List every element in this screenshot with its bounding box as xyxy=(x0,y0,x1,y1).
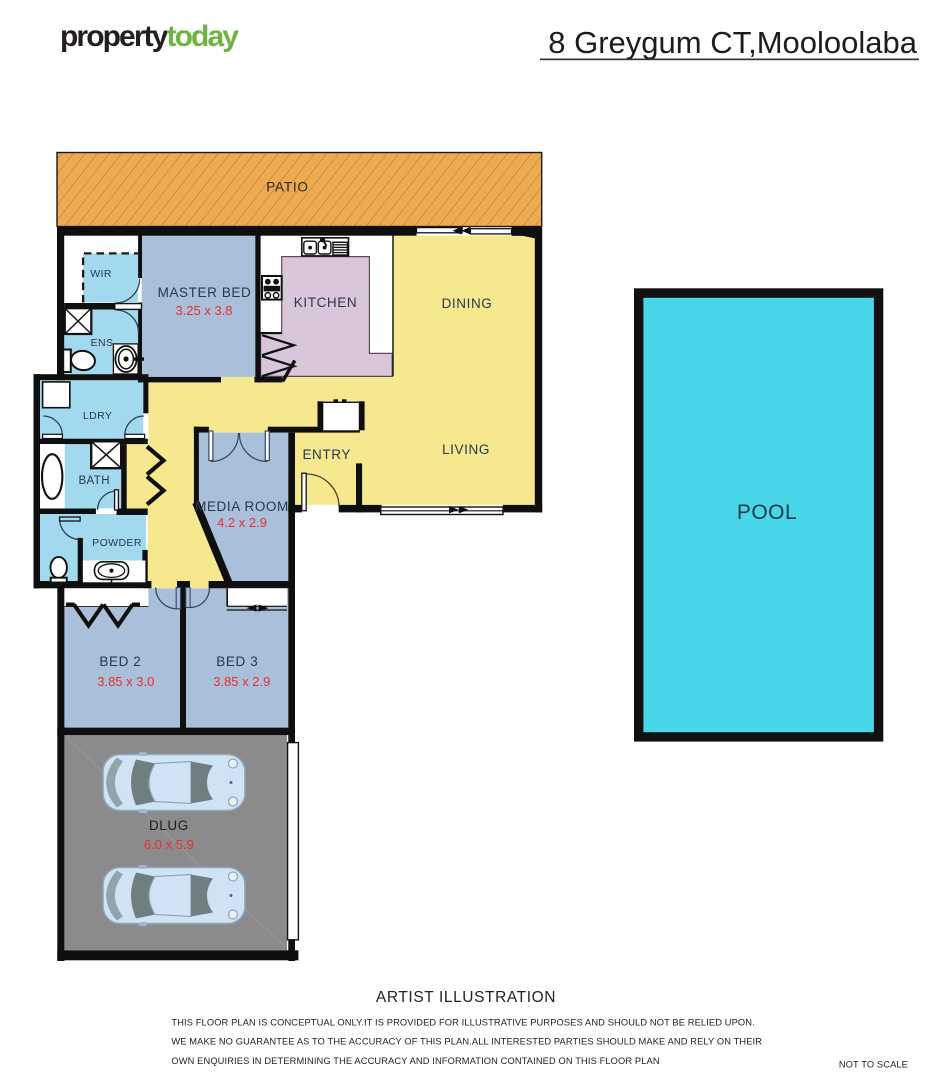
svg-text:propertytoday: propertytoday xyxy=(60,20,239,53)
svg-text:OWN ENQUIRIES IN DETERMINING T: OWN ENQUIRIES IN DETERMINING THE ACCURAC… xyxy=(171,1056,659,1066)
svg-text:ENTRY: ENTRY xyxy=(302,447,351,462)
svg-text:6.0 x 5.9: 6.0 x 5.9 xyxy=(144,837,194,852)
svg-text:WIR: WIR xyxy=(90,268,112,280)
svg-text:8 Greygum CT,Mooloolaba: 8 Greygum CT,Mooloolaba xyxy=(548,25,917,60)
svg-text:3.85 x 2.9: 3.85 x 2.9 xyxy=(213,674,270,689)
svg-text:PATIO: PATIO xyxy=(266,180,309,195)
svg-text:BATH: BATH xyxy=(78,475,109,487)
svg-text:3.25 x 3.8: 3.25 x 3.8 xyxy=(175,303,232,318)
svg-text:MASTER BED: MASTER BED xyxy=(158,285,252,300)
svg-text:3.85 x 3.0: 3.85 x 3.0 xyxy=(97,674,154,689)
svg-text:4.2 x 2.9: 4.2 x 2.9 xyxy=(217,515,267,530)
svg-text:LDRY: LDRY xyxy=(83,410,112,422)
svg-text:BED 3: BED 3 xyxy=(216,654,258,669)
svg-text:THIS FLOOR PLAN IS CONCEPTUAL: THIS FLOOR PLAN IS CONCEPTUAL ONLY.IT IS… xyxy=(171,1018,754,1028)
svg-text:ENS: ENS xyxy=(91,337,114,349)
svg-text:MEDIA ROOM: MEDIA ROOM xyxy=(195,499,289,514)
svg-text:BED 2: BED 2 xyxy=(99,654,141,669)
svg-text:ARTIST ILLUSTRATION: ARTIST ILLUSTRATION xyxy=(376,989,556,1006)
svg-text:DINING: DINING xyxy=(442,296,493,311)
svg-text:DLUG: DLUG xyxy=(149,818,189,833)
svg-text:POOL: POOL xyxy=(737,501,797,524)
svg-text:KITCHEN: KITCHEN xyxy=(294,295,357,310)
svg-text:WE MAKE NO GUARANTEE AS TO THE: WE MAKE NO GUARANTEE AS TO THE ACCURACY … xyxy=(171,1037,762,1047)
svg-text:LIVING: LIVING xyxy=(442,442,490,457)
svg-text:NOT TO SCALE: NOT TO SCALE xyxy=(839,1060,908,1070)
svg-text:POWDER: POWDER xyxy=(92,537,142,549)
